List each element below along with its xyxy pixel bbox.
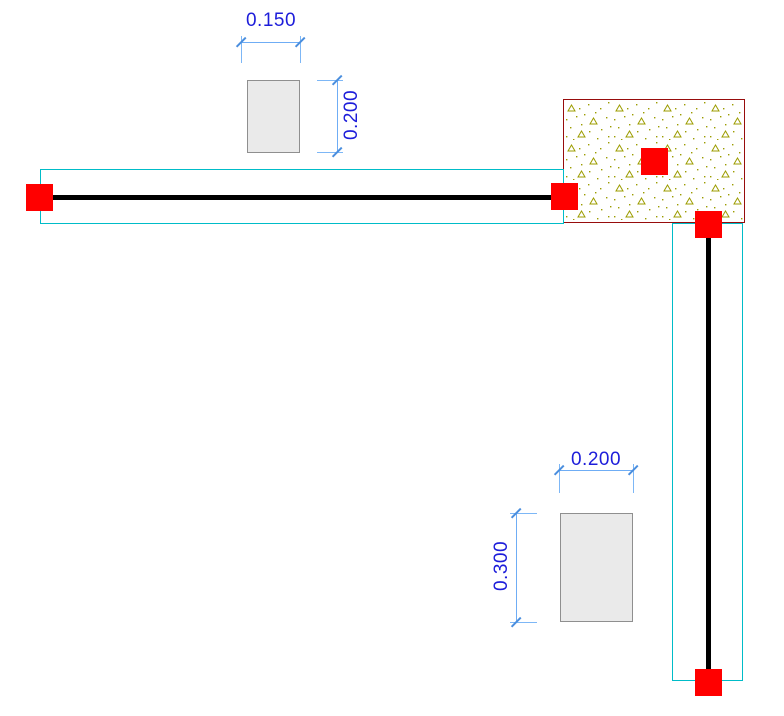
dim-line [241, 42, 300, 43]
column-centerline[interactable] [706, 237, 711, 669]
dim-label-beam-section-width[interactable]: 0.150 [234, 11, 308, 31]
beam-section-preview[interactable] [247, 80, 300, 153]
cad-canvas[interactable]: 0.150 0.200 0.200 0.300 [0, 0, 784, 716]
dim-line [559, 470, 633, 471]
node-column-top[interactable] [695, 211, 722, 238]
beam-centerline[interactable] [53, 195, 551, 200]
dim-extension-line [317, 152, 343, 153]
column-section-preview[interactable] [560, 513, 633, 622]
dim-label-beam-section-height[interactable]: 0.200 [342, 78, 362, 152]
node-beam-right[interactable] [551, 183, 578, 210]
dim-label-column-section-width[interactable]: 0.200 [559, 450, 633, 470]
dim-label-column-section-height[interactable]: 0.300 [492, 529, 512, 603]
dim-extension-line [317, 80, 343, 81]
dim-line [516, 513, 517, 622]
node-slab[interactable] [641, 148, 668, 175]
node-column-bottom[interactable] [695, 669, 722, 696]
node-beam-left[interactable] [26, 184, 53, 211]
dim-line [337, 80, 338, 152]
